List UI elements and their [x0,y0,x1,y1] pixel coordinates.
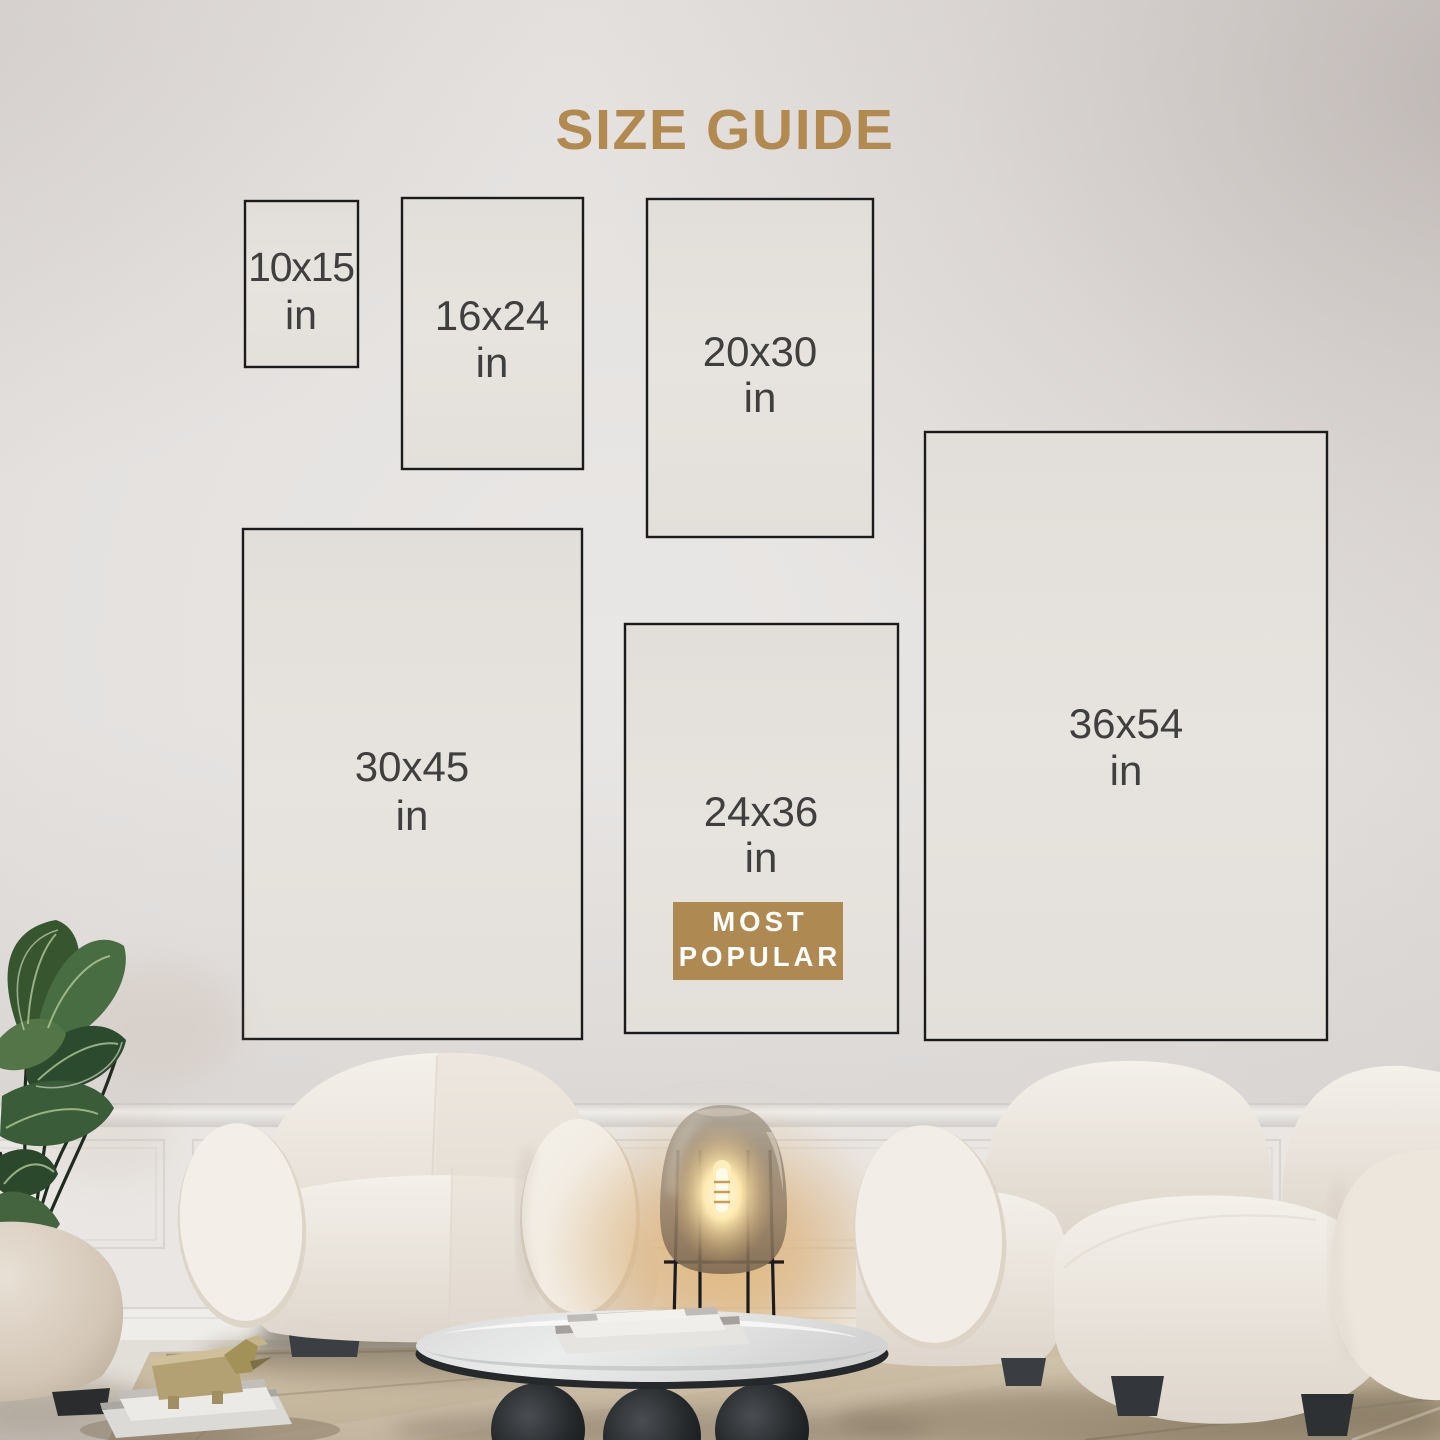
svg-text:16x24: 16x24 [435,292,549,339]
svg-text:36x54: 36x54 [1069,700,1183,747]
svg-text:24x36: 24x36 [704,788,818,835]
svg-text:in: in [396,792,429,839]
svg-text:20x30: 20x30 [703,328,817,375]
svg-text:SIZE GUIDE: SIZE GUIDE [555,98,894,162]
svg-text:in: in [285,292,317,338]
svg-text:MOST: MOST [712,906,807,937]
svg-text:30x45: 30x45 [355,743,469,790]
svg-text:in: in [476,339,509,386]
svg-text:10x15: 10x15 [248,244,354,290]
svg-text:in: in [744,374,777,421]
svg-text:in: in [1110,747,1143,794]
svg-text:POPULAR: POPULAR [679,941,841,972]
svg-text:in: in [745,834,778,881]
